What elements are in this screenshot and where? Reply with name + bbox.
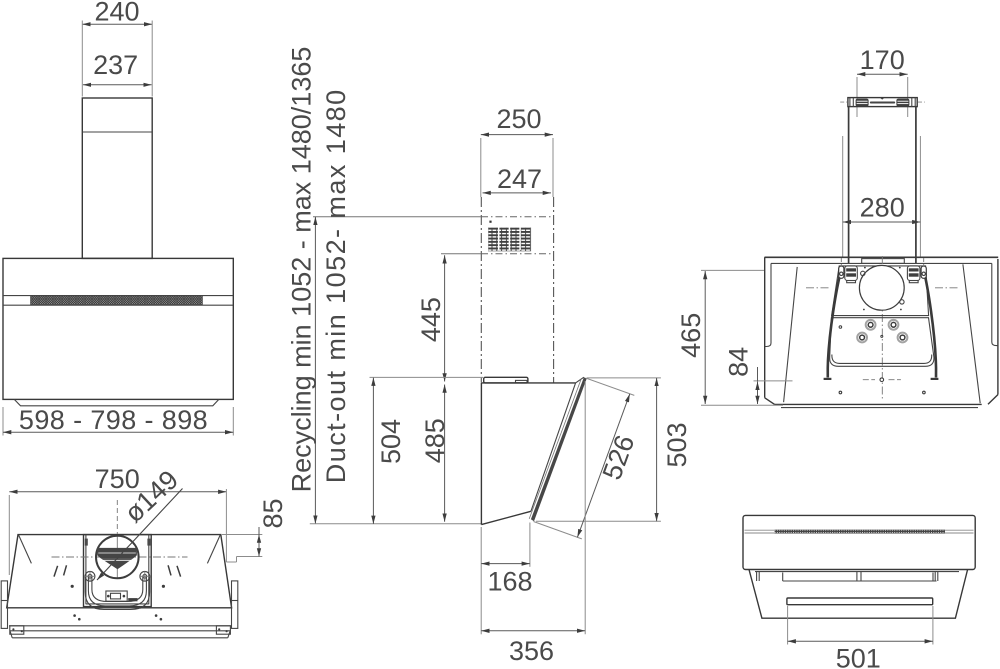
- svg-text:501: 501: [836, 644, 881, 669]
- svg-text:250: 250: [496, 104, 541, 134]
- svg-text:Duct-out min 1052- max 1480: Duct-out min 1052- max 1480: [321, 88, 351, 483]
- svg-text:237: 237: [93, 50, 138, 80]
- svg-text:503: 503: [662, 422, 692, 467]
- svg-text:504: 504: [376, 419, 406, 464]
- svg-text:598 - 798 - 898: 598 - 798 - 898: [19, 405, 208, 435]
- svg-text:280: 280: [860, 193, 905, 223]
- svg-text:84: 84: [724, 347, 754, 377]
- svg-text:85: 85: [258, 498, 288, 528]
- svg-text:526: 526: [597, 431, 641, 484]
- svg-text:465: 465: [676, 313, 706, 358]
- svg-text:247: 247: [497, 164, 542, 194]
- svg-text:240: 240: [94, 0, 139, 27]
- svg-text:485: 485: [420, 418, 450, 463]
- svg-text:750: 750: [95, 464, 140, 494]
- svg-text:356: 356: [509, 636, 554, 666]
- svg-text:Recycling min 1052 - max 1480/: Recycling min 1052 - max 1480/1365: [287, 47, 317, 493]
- svg-text:170: 170: [860, 45, 905, 75]
- svg-text:168: 168: [487, 567, 532, 597]
- svg-text:445: 445: [416, 297, 446, 342]
